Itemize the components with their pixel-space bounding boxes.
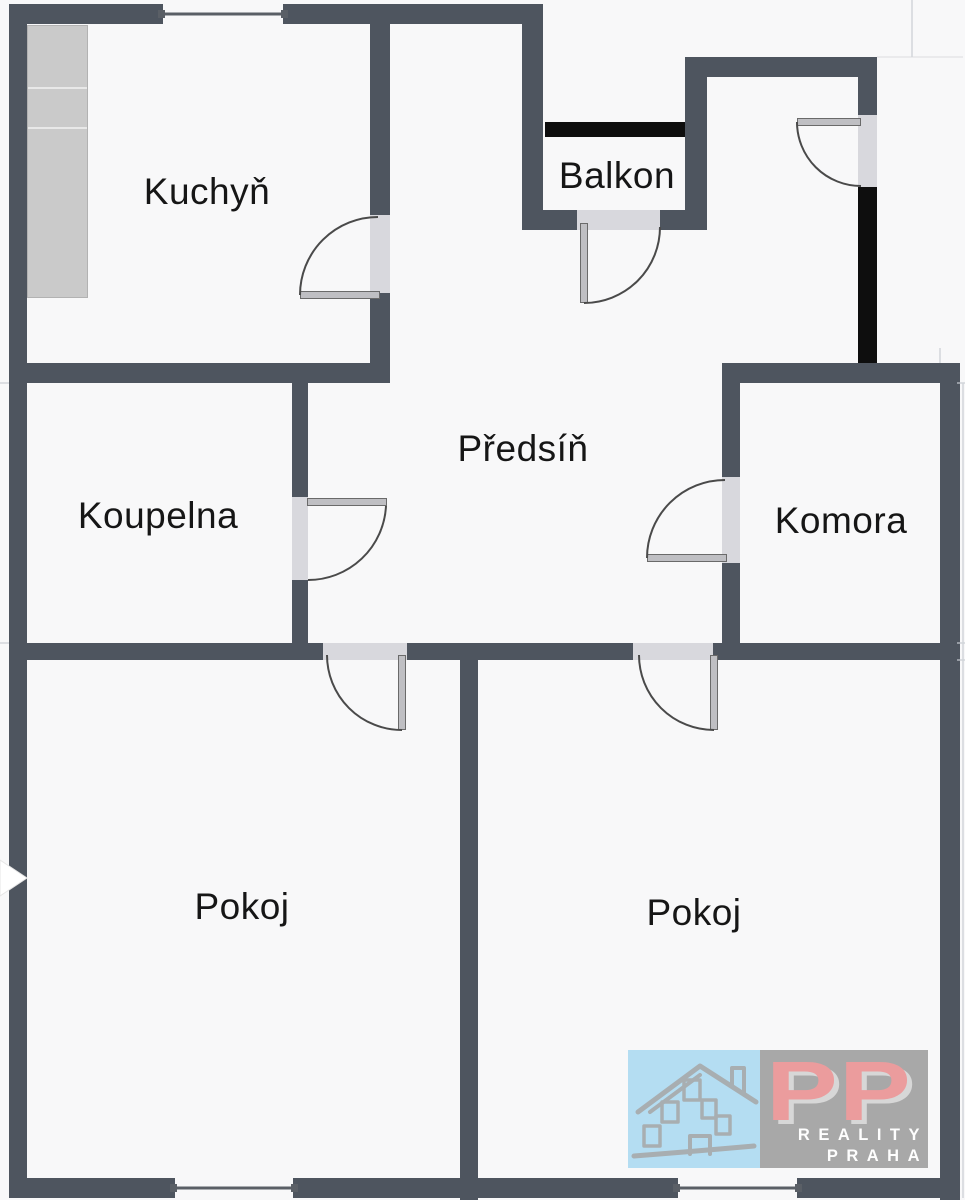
logo-praha-text: PRAHA (827, 1147, 928, 1166)
door-leaf (797, 118, 861, 126)
wall-segment (685, 57, 877, 77)
door-swing-arc (639, 655, 714, 730)
door-opening (370, 215, 390, 293)
wall-segment (685, 57, 707, 230)
door-leaf (300, 291, 380, 299)
door-swing-arc (327, 655, 402, 730)
kitchen-counter-seam (28, 127, 87, 129)
wall-segment (722, 363, 960, 383)
door-leaf (398, 655, 406, 730)
door-opening (292, 497, 308, 580)
loggia-glazing (858, 187, 877, 363)
window (673, 1184, 802, 1192)
wall-segment (9, 363, 390, 383)
door-opening (633, 643, 713, 660)
wall-segment (713, 643, 960, 660)
room-label-koupelna: Koupelna (78, 495, 238, 537)
door-leaf (710, 655, 718, 730)
floor-plan: Kuchyň Balkon Předsíň Koupelna Komora Po… (0, 0, 965, 1200)
wall-segment (797, 1178, 960, 1198)
wall-segment (9, 4, 163, 24)
door-leaf (647, 554, 727, 562)
wall-segment (283, 4, 543, 24)
wall-segment (522, 24, 543, 230)
wall-segment (9, 4, 27, 1198)
window (158, 10, 288, 18)
wall-segment (407, 643, 633, 660)
door-swing-arc (308, 506, 386, 580)
wall-segment (9, 643, 323, 660)
wall-segment (858, 57, 877, 115)
room-label-pokoj-right: Pokoj (646, 892, 741, 934)
room-label-predsin: Předsíň (457, 428, 588, 470)
wall-segment (722, 383, 740, 477)
logo-text-panel: PP REALITY PRAHA (760, 1050, 928, 1168)
door-leaf (580, 223, 588, 303)
agency-logo: PP REALITY PRAHA (628, 1050, 928, 1168)
wall-segment (940, 363, 960, 1200)
logo-house-panel (628, 1050, 760, 1168)
room-label-kuchyn: Kuchyň (144, 171, 270, 213)
door-opening (722, 477, 740, 563)
door-opening (323, 643, 407, 660)
logo-reality-text: REALITY (798, 1126, 928, 1145)
door-swing-arc (300, 217, 378, 295)
wall-segment (460, 660, 478, 1200)
kitchen-counter (27, 25, 88, 298)
room-label-komora: Komora (775, 500, 908, 542)
wall-segment (292, 383, 308, 497)
wall-segment (293, 1178, 678, 1198)
room-label-pokoj-left: Pokoj (194, 886, 289, 928)
wall-segment (722, 563, 740, 643)
door-leaf (307, 498, 387, 506)
door-swing-arc (647, 480, 725, 558)
wall-segment (370, 4, 390, 215)
door-swing-arc (797, 122, 861, 186)
balcony-railing (545, 122, 685, 137)
room-label-balkon: Balkon (559, 155, 675, 197)
door-swing-arc (584, 227, 660, 303)
house-icon (628, 1050, 760, 1168)
window (170, 1184, 298, 1192)
kitchen-counter-seam (28, 87, 87, 89)
wall-segment (9, 1178, 175, 1198)
door-opening (577, 210, 660, 230)
